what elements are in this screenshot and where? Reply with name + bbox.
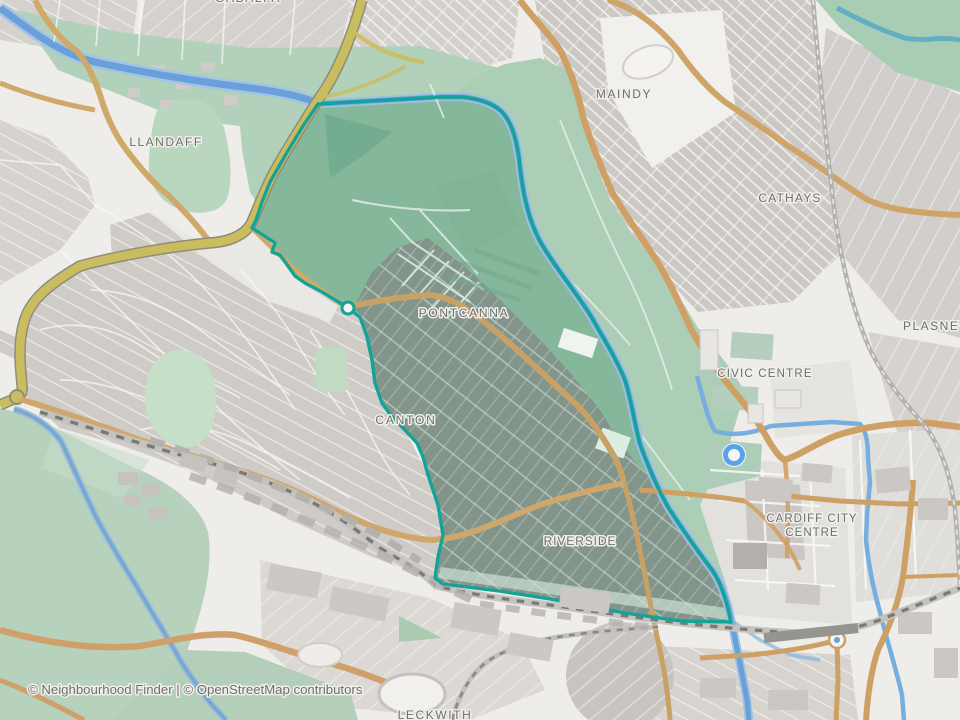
svg-text:CATHAYS: CATHAYS	[758, 191, 821, 205]
svg-text:RIVERSIDE: RIVERSIDE	[544, 534, 617, 548]
svg-text:GABALFA: GABALFA	[215, 0, 281, 5]
svg-text:CENTRE: CENTRE	[785, 527, 838, 539]
svg-text:© Neighbourhood Finder | © Ope: © Neighbourhood Finder | © OpenStreetMap…	[28, 682, 363, 697]
svg-text:MAINDY: MAINDY	[596, 87, 652, 101]
svg-text:PONTCANNA: PONTCANNA	[419, 306, 510, 320]
svg-text:PLASNEWYDD: PLASNEWYDD	[903, 319, 960, 333]
svg-text:CARDIFF CITY: CARDIFF CITY	[766, 513, 857, 525]
svg-text:CIVIC CENTRE: CIVIC CENTRE	[717, 368, 813, 380]
svg-text:LECKWITH: LECKWITH	[398, 708, 473, 720]
svg-text:CANTON: CANTON	[375, 413, 436, 427]
svg-text:LLANDAFF: LLANDAFF	[129, 135, 202, 149]
